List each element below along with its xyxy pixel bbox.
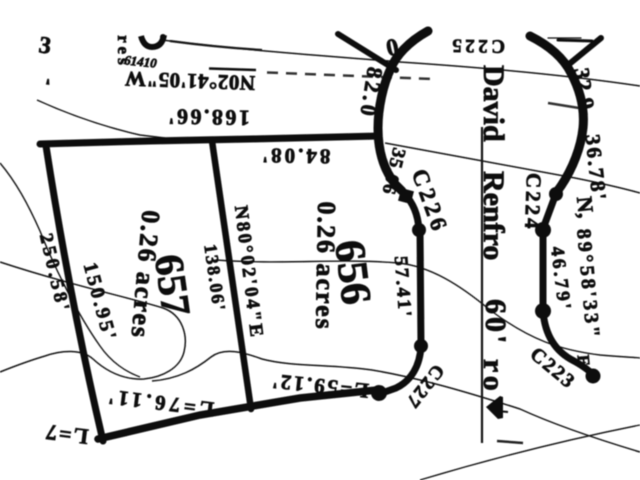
svg-text:657: 657 [146,251,200,318]
svg-text:C224: C224 [520,173,546,232]
svg-text:E: E [574,354,594,367]
svg-text:32.9: 32.9 [569,66,600,112]
svg-text:ro: ro [477,359,510,395]
svg-text:': ' [44,65,52,90]
svg-text:N02°41'05"W: N02°41'05"W [124,67,255,96]
svg-text:150.95': 150.95' [79,260,121,344]
svg-text:0: 0 [384,34,401,62]
svg-text:C227: C227 [401,360,448,413]
svg-text:Renfro: Renfro [477,171,510,260]
svg-text:L=76.11': L=76.11' [103,384,215,421]
svg-text:L=7: L=7 [43,419,90,449]
svg-text:David: David [477,65,510,142]
svg-text:36.78': 36.78' [580,133,611,203]
svg-text:3: 3 [37,32,53,59]
svg-text:656: 656 [325,237,380,307]
svg-text:46.79': 46.79' [546,245,575,313]
svg-text:C225: C225 [449,35,506,57]
svg-text:60': 60' [479,299,512,346]
svg-text:57.41': 57.41' [390,255,415,319]
svg-text:N,: N, [572,195,599,219]
svg-text:168.66': 168.66' [166,104,251,130]
svg-text:89°58'33": 89°58'33" [572,228,604,341]
svg-text:84.08': 84.08' [259,143,331,168]
